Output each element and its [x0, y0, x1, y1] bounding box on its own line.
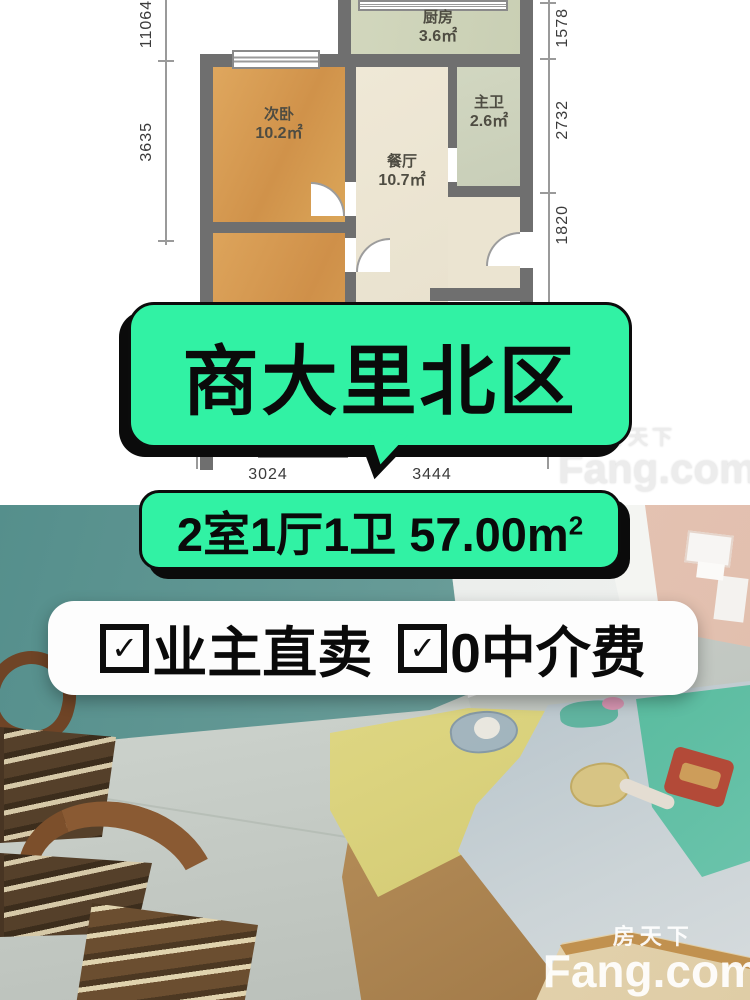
room-label-bath: 主卫 2.6㎡: [450, 93, 528, 132]
dim-right-top: 1578: [554, 8, 572, 48]
room-area: 10.2㎡: [215, 124, 343, 144]
dim-right-mid: 2732: [554, 100, 572, 140]
dim-bottom-left: 3024: [228, 466, 308, 484]
dim-tick: [158, 240, 174, 242]
feature-label: 0中介费: [450, 608, 646, 688]
wall: [338, 54, 533, 67]
dim-line: [165, 0, 167, 245]
dim-left-mid: 3635: [138, 122, 156, 162]
dim-right-bottom: 1820: [554, 205, 572, 245]
watermark-en: Fang.com: [543, 948, 750, 994]
dim-tick: [540, 58, 556, 60]
building-window: [713, 575, 748, 622]
quilt-cartoon: [602, 697, 624, 710]
checkbox-icon: ✓: [100, 624, 149, 673]
door-gap: [345, 238, 356, 272]
dim-tick: [540, 192, 556, 194]
bubble-tail: [364, 429, 408, 468]
layout-area-value: 2室1厅1卫 57.00m: [177, 508, 569, 561]
room-label-bedroom: 次卧 10.2㎡: [215, 105, 343, 144]
checkbox-icon: ✓: [398, 624, 447, 673]
watermark-bottom: 房天下 Fang.com: [543, 926, 750, 994]
dim-line: [548, 0, 550, 305]
room-name: 主卫: [450, 93, 528, 112]
feature-zero-fee: ✓ 0中介费: [398, 608, 646, 688]
room-name: 次卧: [215, 105, 343, 124]
feature-banner: ✓ 业主直卖 ✓ 0中介费: [48, 601, 698, 695]
area-superscript: 2: [569, 510, 583, 540]
room-area: 10.7㎡: [352, 171, 452, 191]
building-ac-unit: [696, 561, 725, 580]
wall: [430, 288, 533, 301]
listing-card: 厨房 3.6㎡ 次卧 10.2㎡ 餐厅 10.7㎡ 主卫 2.6㎡ 110647…: [0, 0, 750, 1000]
layout-area-text: 2室1厅1卫 57.00m2: [177, 496, 583, 565]
room-photo: 房天下 Fang.com: [0, 505, 750, 1000]
plan-window: [232, 50, 320, 69]
dim-tick: [540, 2, 556, 4]
room-label-kitchen: 厨房 3.6㎡: [378, 8, 498, 47]
room-name: 餐厅: [352, 152, 452, 171]
wall: [200, 222, 356, 233]
dim-left-top: 110647: [138, 0, 156, 48]
room-area: 2.6㎡: [450, 112, 528, 132]
feature-label: 业主直卖: [152, 608, 372, 688]
wall: [448, 186, 533, 197]
spec-banner: 2室1厅1卫 57.00m2: [139, 490, 621, 570]
room-name: 厨房: [378, 8, 498, 27]
feature-owner-direct: ✓ 业主直卖: [100, 608, 372, 688]
dim-tick: [158, 60, 174, 62]
community-title: 商大里北区: [183, 320, 578, 430]
room-label-dining: 餐厅 10.7㎡: [352, 152, 452, 191]
room-area: 3.6㎡: [378, 27, 498, 47]
watermark-en: Fang.com: [558, 448, 750, 490]
title-bubble: 商大里北区: [128, 302, 632, 448]
door-gap: [520, 232, 533, 268]
